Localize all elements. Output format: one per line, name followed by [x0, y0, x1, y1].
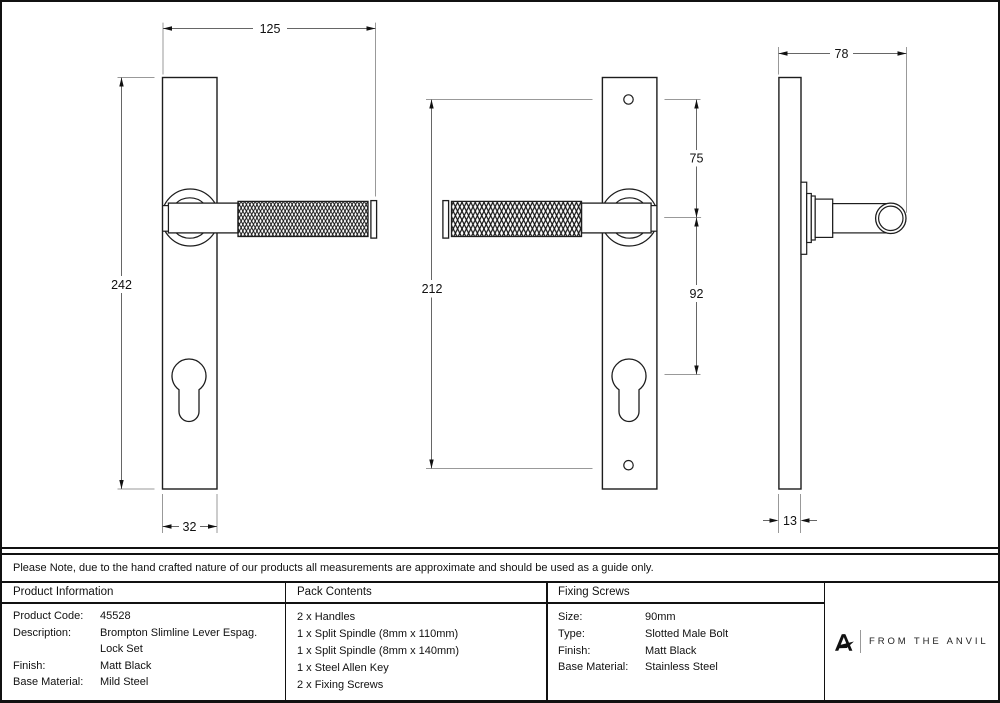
svg-text:32: 32 — [183, 520, 197, 534]
svg-text:13: 13 — [783, 514, 797, 528]
svg-text:75: 75 — [690, 152, 704, 166]
svg-text:125: 125 — [260, 22, 281, 36]
svg-text:92: 92 — [690, 287, 704, 301]
svg-text:212: 212 — [422, 282, 443, 296]
svg-text:242: 242 — [111, 278, 132, 292]
svg-text:78: 78 — [835, 47, 849, 61]
